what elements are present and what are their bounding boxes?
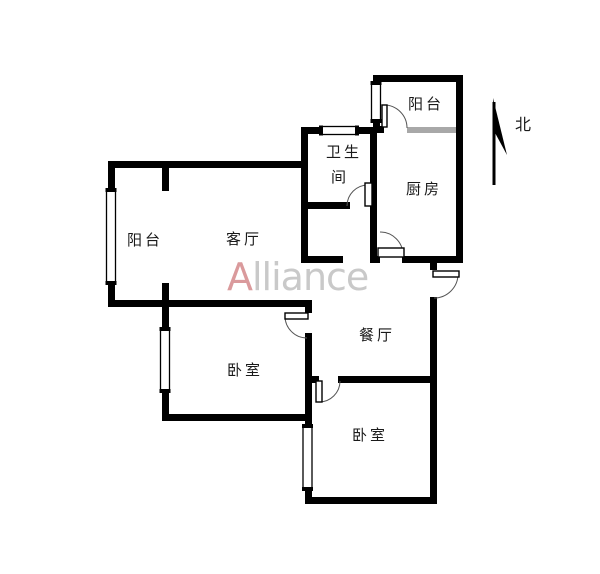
north-label: 北 — [515, 115, 531, 134]
window-balcony-top-left — [371, 81, 382, 123]
north-arrow-icon — [493, 98, 507, 185]
room-label-balcony-left: 阳台 — [127, 231, 163, 249]
door-bedroom-left — [285, 313, 308, 338]
window-bedroom-left — [160, 327, 171, 393]
floor-plan-canvas: Alliance — [0, 0, 600, 574]
wall-living-bottom — [108, 300, 312, 307]
wall-dining-bedroom-divider — [338, 376, 437, 383]
room-label-bathroom-line1: 卫生 — [326, 143, 362, 161]
wall-hall-nook-bottom — [301, 256, 343, 263]
wall-kitchen-bottom-right — [402, 256, 463, 263]
room-label-dining-room: 餐厅 — [359, 326, 395, 344]
wall-bathroom-bottom — [301, 202, 350, 209]
wall-kitchen-right — [456, 75, 463, 263]
room-label-bathroom-line2: 间 — [331, 168, 349, 186]
door-bathroom — [347, 183, 372, 206]
wall-entry-stub — [430, 263, 437, 270]
window-balcony-left — [106, 188, 117, 285]
wall-dining-right — [430, 297, 437, 504]
wall-bedroom-right-bottom — [305, 497, 437, 504]
room-label-living-room: 客厅 — [226, 230, 262, 248]
window-bathroom-top — [319, 126, 359, 136]
wall-balcony-top-top — [373, 75, 463, 82]
wall-bathroom-left — [301, 127, 308, 263]
door-bedroom-right — [316, 381, 340, 402]
wall-central-b — [305, 333, 312, 425]
door-balcony-top — [382, 105, 407, 128]
wall-balcony-left-upper — [108, 161, 115, 189]
wall-living-top — [108, 161, 308, 168]
wall-central-a — [305, 300, 312, 313]
glass-panel-balcony-top — [407, 127, 456, 133]
room-label-kitchen: 厨房 — [406, 180, 442, 198]
window-bedroom-right — [302, 424, 313, 491]
wall-bedroom-left-outer-upper — [162, 300, 169, 328]
wall-bedroom-left-bottom — [162, 414, 312, 421]
room-label-balcony-top: 阳台 — [408, 95, 444, 113]
floor-plan-drawing: 北 阳台 卫生 间 厨房 阳台 客厅 餐厅 卧室 卧室 — [0, 0, 600, 574]
door-entry — [433, 271, 459, 298]
room-label-bedroom-right: 卧室 — [352, 426, 388, 444]
room-label-bedroom-left: 卧室 — [227, 361, 263, 379]
door-kitchen — [378, 232, 404, 257]
wall-balcony-divider-top-stub — [162, 161, 169, 191]
